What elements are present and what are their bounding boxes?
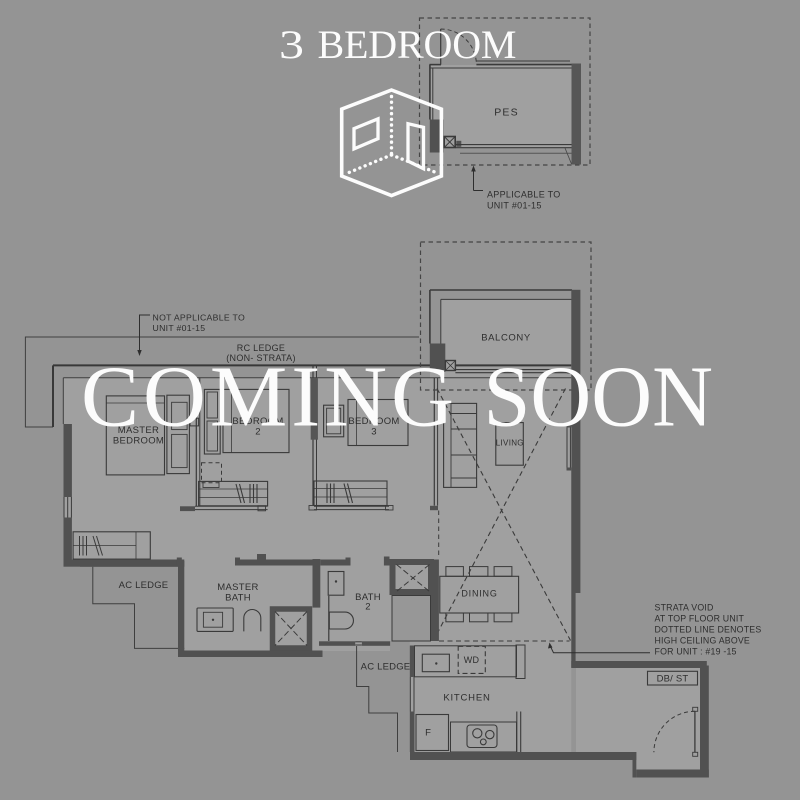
svg-text:UNIT #01-15: UNIT #01-15 bbox=[487, 201, 542, 211]
svg-text:2: 2 bbox=[365, 602, 371, 613]
svg-text:FOR UNIT : #19 -15: FOR UNIT : #19 -15 bbox=[655, 647, 737, 657]
svg-text:NOT APPLICABLE TO: NOT APPLICABLE TO bbox=[153, 313, 246, 323]
svg-text:DINING: DINING bbox=[461, 589, 497, 599]
svg-text:SOON: SOON bbox=[484, 348, 714, 445]
svg-text:MASTER: MASTER bbox=[217, 582, 258, 593]
svg-text:BEDROOM: BEDROOM bbox=[318, 22, 517, 67]
svg-text:STRATA VOID: STRATA VOID bbox=[655, 603, 714, 613]
svg-text:COMING: COMING bbox=[81, 348, 454, 445]
svg-text:AT TOP FLOOR UNIT: AT TOP FLOOR UNIT bbox=[655, 614, 745, 624]
svg-text:PES: PES bbox=[494, 107, 519, 119]
svg-text:AC LEDGE: AC LEDGE bbox=[361, 662, 411, 673]
svg-text:BATH: BATH bbox=[225, 593, 251, 604]
svg-text:UNIT #01-15: UNIT #01-15 bbox=[153, 323, 206, 333]
svg-text:BALCONY: BALCONY bbox=[481, 333, 531, 344]
svg-text:F: F bbox=[425, 728, 431, 739]
svg-text:WD: WD bbox=[464, 655, 480, 665]
svg-text:3: 3 bbox=[279, 22, 304, 67]
svg-text:DB/ ST: DB/ ST bbox=[657, 674, 689, 685]
svg-text:HIGH CEILING ABOVE: HIGH CEILING ABOVE bbox=[655, 636, 751, 646]
svg-text:AC LEDGE: AC LEDGE bbox=[119, 580, 169, 591]
svg-text:KITCHEN: KITCHEN bbox=[443, 693, 490, 704]
svg-text:APPLICABLE TO: APPLICABLE TO bbox=[487, 190, 561, 200]
svg-text:DOTTED LINE DENOTES: DOTTED LINE DENOTES bbox=[655, 625, 762, 635]
